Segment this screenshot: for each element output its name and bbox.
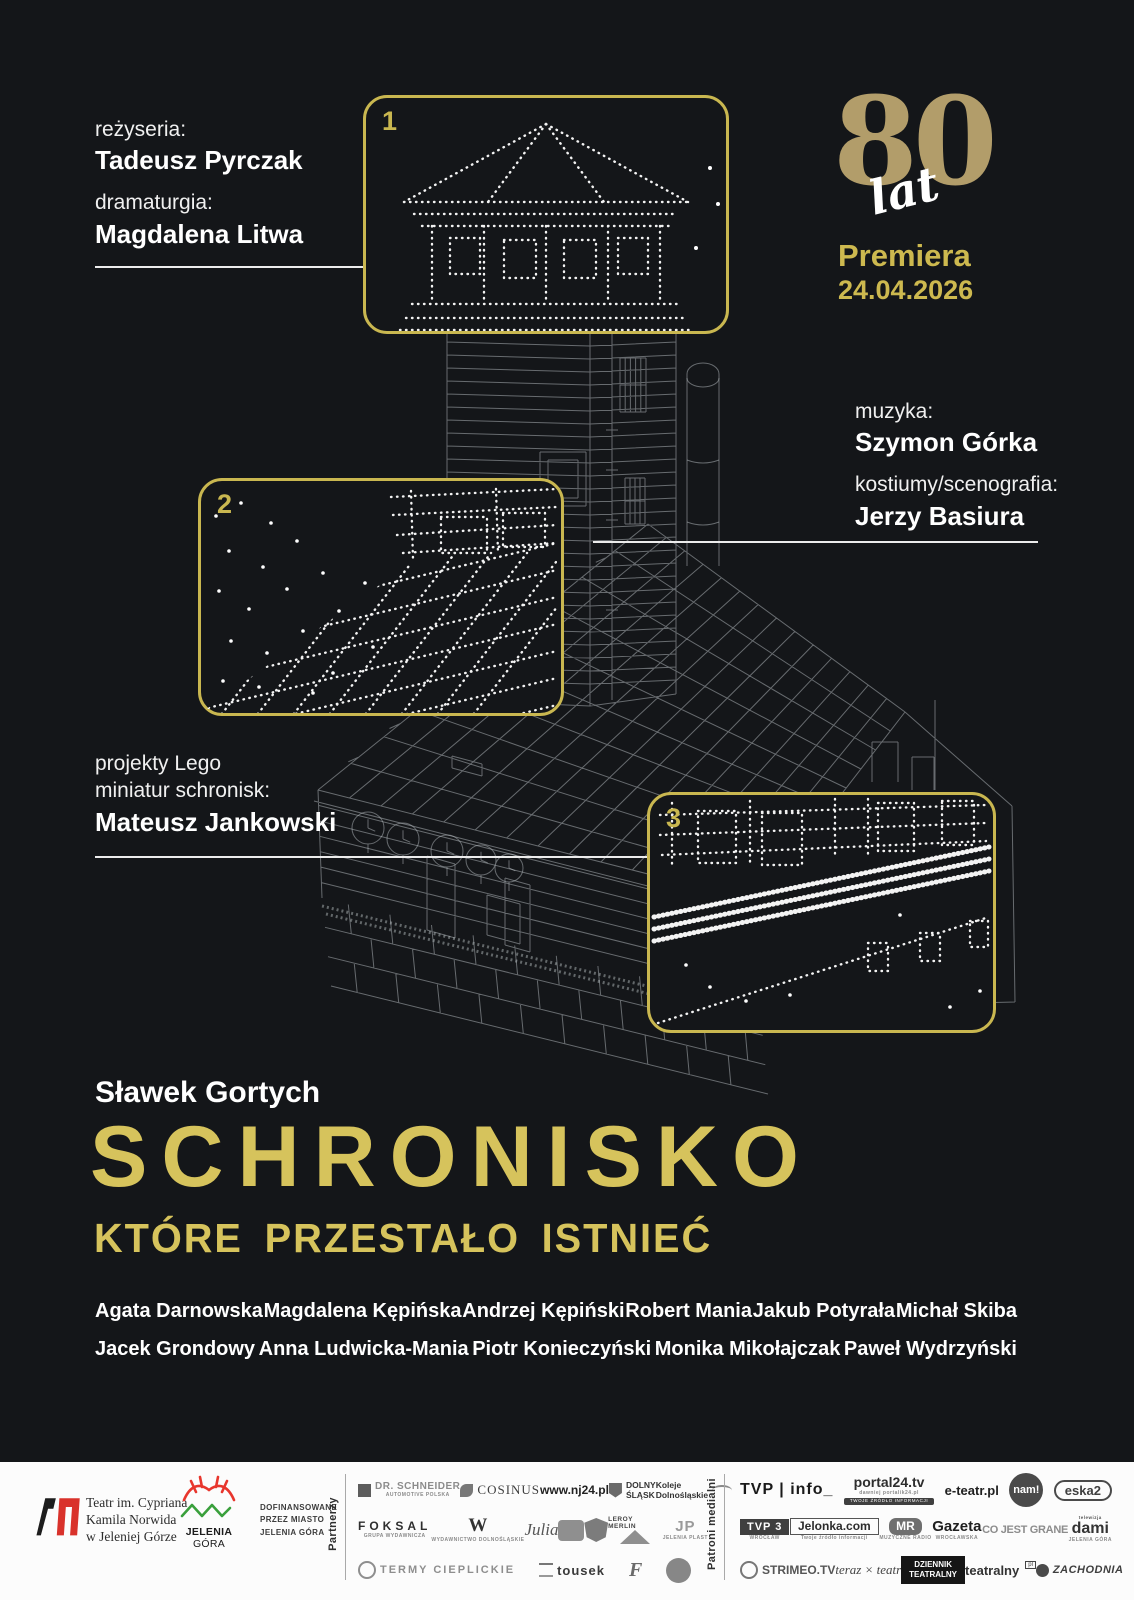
media-logo-eska2: eska2 [1054, 1480, 1112, 1501]
media-logo-dziennik-teatralny: DZIENNIK TEATRALNY [901, 1556, 965, 1585]
cast-member: Anna Ludwicka-Mania [259, 1338, 469, 1361]
partner-logo-leroy-merlin: LEROY MERLIN [608, 1516, 663, 1544]
partner-emblem-blob [558, 1520, 584, 1541]
partner-logo-label: DR. SCHNEIDER [375, 1481, 460, 1492]
partner-logo-foksal: FOKSALGRUPA WYDAWNICZA [358, 1520, 431, 1540]
partners-row-2: FOKSALGRUPA WYDAWNICZA WWYDAWNICTWO DOLN… [358, 1510, 708, 1550]
partners-section-label: Partnerzy [327, 1497, 339, 1551]
crest-icon [609, 1483, 622, 1498]
partner-logo-wydawnictwo-dolnoslaskie: WWYDAWNICTWO DOLNOŚLĄSKIE [431, 1516, 524, 1543]
media-patrons-section-label: Patroni medialni [706, 1478, 718, 1570]
callout-box-3-wall-windows: 3 [647, 792, 996, 1033]
triangle-icon [620, 1530, 650, 1544]
media-logo-nam: nam! [1009, 1473, 1043, 1507]
credit-name: Tadeusz Pyrczak [95, 145, 303, 176]
funding-line: DOFINANSOWANE [260, 1502, 337, 1514]
cast-member: Jacek Grondowy [95, 1338, 255, 1361]
media-logo-teatralny-pl: teatralny pl [965, 1563, 1036, 1578]
partner-logo-label: COSINUS [477, 1482, 540, 1498]
credit-name: Szymon Górka [855, 427, 1058, 458]
callout-number: 1 [382, 106, 397, 137]
cast-member: Magdalena Kępińska [264, 1300, 462, 1323]
circle-icon [1036, 1564, 1049, 1577]
author-name: Sławek Gortych [95, 1076, 320, 1110]
credit-role: reżyseria: [95, 116, 303, 143]
norwid-theatre-logo [36, 1488, 82, 1542]
credits-direction: reżyseria: Tadeusz Pyrczak dramaturgia: … [95, 116, 303, 263]
partners-logo-grid: DR. SCHNEIDERAUTOMOTIVE POLSKA COSINUS w… [358, 1470, 708, 1590]
media-logo-grid: TVP | info_ portal24.tv dawniej portalik… [740, 1470, 1112, 1590]
funding-note: DOFINANSOWANE PRZEZ MIASTO JELENIA GÓRA [260, 1502, 337, 1539]
city-name-bold: JELENIA [186, 1526, 232, 1538]
credit-name: Mateusz Jankowski [95, 807, 336, 838]
broadcast-arcs-icon [740, 1561, 758, 1579]
credits-lego-models: projekty Lego miniatur schronisk: Mateus… [95, 750, 336, 851]
square-emblem-icon [358, 1484, 371, 1497]
footer-logo-strip: Teatr im. Cypriana Kamila Norwida w Jele… [0, 1462, 1134, 1600]
media-row-2: TVP 3WROCŁAW Jelonka.comTwoje źródło inf… [740, 1510, 1112, 1550]
partner-logo-dr-schneider: DR. SCHNEIDERAUTOMOTIVE POLSKA [358, 1481, 460, 1499]
play-title-line-1: SCHRONISKO [90, 1114, 813, 1200]
partner-emblem-crest [584, 1518, 608, 1542]
vertical-divider [724, 1474, 725, 1580]
media-logo-tvp-info: TVP | info_ [740, 1481, 833, 1499]
media-logo-teraz-teatr: teraz × teatr [835, 1562, 901, 1578]
anniversary-80-lat-logo: 80 lat [833, 80, 1013, 245]
media-logo-tvp3-wroclaw: TVP 3WROCŁAW [740, 1519, 789, 1542]
cast-row-2: Jacek Grondowy Anna Ludwicka-Mania Piotr… [95, 1338, 1017, 1361]
pl-box-suffix: pl [1025, 1561, 1036, 1569]
media-logo-strimeo: STRIMEO.TV [740, 1561, 835, 1579]
funding-line: JELENIA GÓRA [260, 1527, 337, 1539]
premiere-block: Premiera 24.04.2026 [838, 238, 973, 306]
portal24-tagline-pill: TWOJE ŹRÓDŁO INFORMACJI [844, 1498, 934, 1505]
cast-member: Robert Mania [625, 1300, 752, 1323]
partner-logo-f-crest: F [629, 1559, 642, 1582]
premiere-date: 24.04.2026 [838, 274, 973, 306]
vertical-divider [345, 1474, 346, 1580]
partner-logo-jelenia-plast: JPJELENIA PLAST [663, 1519, 708, 1542]
partner-logo-sub: AUTOMOTIVE POLSKA [386, 1493, 450, 1499]
media-logo-gazeta-wroclawska: GazetaWROCŁAWSKA [932, 1519, 981, 1542]
credit-role: miniatur schronisk: [95, 777, 336, 804]
media-row-3: STRIMEO.TV teraz × teatr DZIENNIK TEATRA… [740, 1550, 1112, 1590]
cast-member: Andrzej Kępiński [462, 1300, 624, 1323]
credit-role: projekty Lego [95, 750, 336, 777]
cast-member: Monika Mikołajczak [655, 1338, 841, 1361]
dotted-art-tower-hut [366, 98, 726, 331]
divider-line-lego [95, 856, 647, 858]
callout-number: 3 [666, 803, 681, 834]
jelenia-gora-city-logo: JELENIA GÓRA [170, 1474, 248, 1550]
credit-role: muzyka: [855, 398, 1058, 425]
flower-emblem-icon [460, 1484, 473, 1497]
partner-logo-nj24: www.nj24.pl [540, 1483, 609, 1497]
partner-logo-dolny-slask: DOLNY ŚLĄSK [609, 1480, 656, 1500]
partner-logo-termy-cieplickie: TERMY CIEPLICKIE [358, 1561, 515, 1579]
callout-box-1-tower-top: 1 [363, 95, 729, 334]
callout-number: 2 [217, 489, 232, 520]
credit-name: Jerzy Basiura [855, 501, 1058, 532]
media-logo-dami: telewizjadamiJELENIA GÓRA [1069, 1516, 1112, 1543]
cast-row-1: Agata Darnowska Magdalena Kępińska Andrz… [95, 1300, 1017, 1323]
credit-name: Magdalena Litwa [95, 219, 303, 250]
city-name-light: GÓRA [193, 1538, 225, 1550]
cast-member: Jakub Potyrała [753, 1300, 895, 1323]
cast-member: Piotr Konieczyński [472, 1338, 651, 1361]
credit-role: kostiumy/scenografia: [855, 471, 1058, 498]
partners-row-3: TERMY CIEPLICKIE tousek F [358, 1550, 708, 1590]
funding-line: PRZEZ MIASTO [260, 1514, 337, 1526]
premiere-label: Premiera [838, 238, 973, 274]
antlers-mountains-icon [174, 1474, 244, 1520]
partner-logo-koleje-dolnoslaskie: Koleje Dolnośląskie [656, 1480, 732, 1500]
theatre-poster: 1 2 3 reżyseria: Tadeusz Pyrczak dramatu… [0, 0, 1134, 1600]
divider-line-top-left [95, 266, 363, 268]
partner-logo-tousek: tousek [539, 1563, 605, 1578]
partner-logo-cosinus: COSINUS [460, 1482, 540, 1498]
media-logo-muzyczne-radio: MRMUZYCZNE RADIO [879, 1518, 931, 1542]
credits-music-costumes: muzyka: Szymon Górka kostiumy/scenografi… [855, 398, 1058, 545]
partner-logo-julia: Julia [524, 1520, 558, 1540]
media-logo-portal24: portal24.tv dawniej portalik24.pl TWOJE … [844, 1475, 934, 1505]
media-logo-e-teatr: e-teatr.pl [945, 1483, 999, 1498]
cast-member: Paweł Wydrzyński [844, 1338, 1017, 1361]
dotted-art-wall-windows [650, 795, 993, 1030]
dotted-art-roof-tiles [201, 481, 561, 713]
media-logo-jelonka: Jelonka.comTwoje źródło informacji [790, 1518, 879, 1542]
ring-icon [358, 1561, 376, 1579]
partner-emblem-raccoon [666, 1558, 691, 1583]
cast-member: Michał Skiba [896, 1300, 1017, 1323]
partner-logo-label: Koleje Dolnośląskie [656, 1480, 708, 1500]
city-logo-label: JELENIA GÓRA [170, 1526, 248, 1550]
media-row-1: TVP | info_ portal24.tv dawniej portalik… [740, 1470, 1112, 1510]
callout-box-2-roof-tiles: 2 [198, 478, 564, 716]
waves-icon [539, 1563, 553, 1577]
cast-member: Agata Darnowska [95, 1300, 263, 1323]
play-title-line-2: KTÓRE PRZESTAŁO ISTNIEĆ [94, 1218, 712, 1259]
media-logo-zachodnia: ZACHODNIA [1036, 1564, 1124, 1577]
partner-logo-label: DOLNY ŚLĄSK [626, 1480, 656, 1500]
media-logo-co-jest-grane: CO JEST GRANE [982, 1524, 1068, 1536]
partners-row-1: DR. SCHNEIDERAUTOMOTIVE POLSKA COSINUS w… [358, 1470, 708, 1510]
credit-role: dramaturgia: [95, 189, 303, 216]
